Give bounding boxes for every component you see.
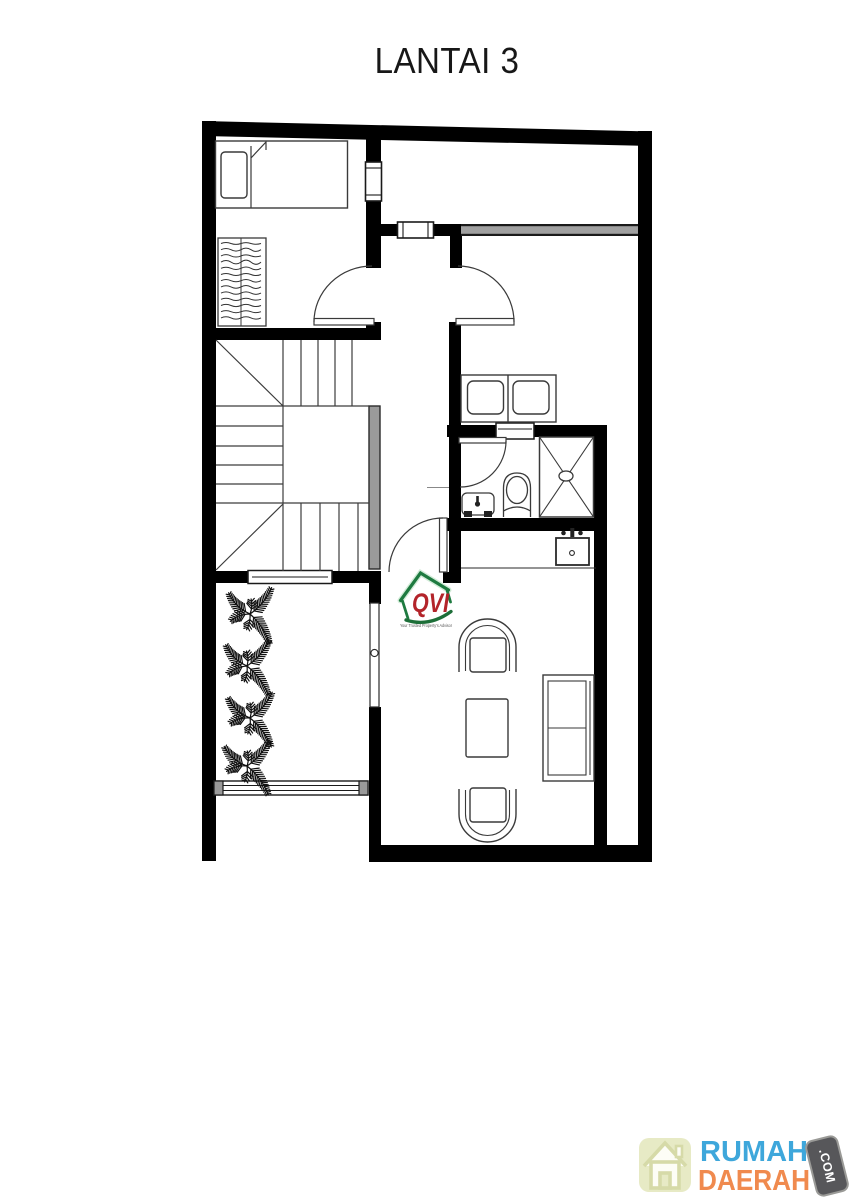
svg-text:DAERAH: DAERAH [698,1165,810,1197]
svg-text:RUMAH: RUMAH [700,1136,808,1168]
svg-text:QVI: QVI [412,588,449,618]
svg-text:Your Trusted Property's Adviso: Your Trusted Property's Advisor [400,623,452,628]
